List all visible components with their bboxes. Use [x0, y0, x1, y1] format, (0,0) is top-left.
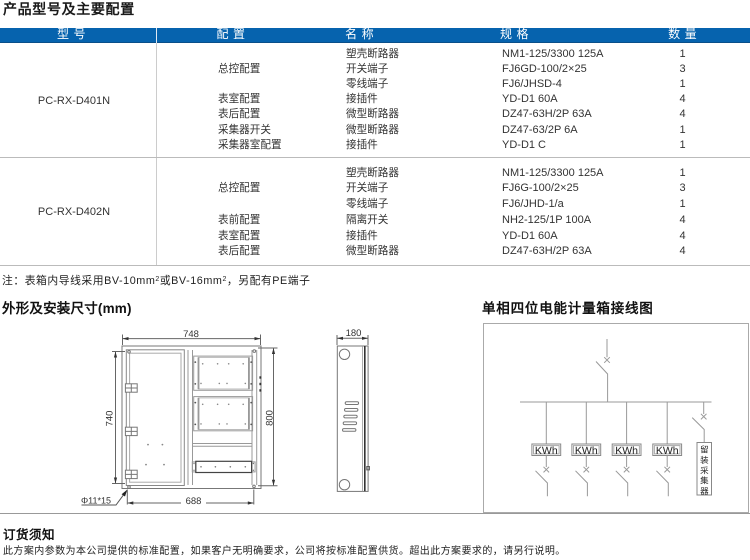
svg-text:采: 采 [700, 465, 709, 475]
svg-text:KWh: KWh [615, 445, 638, 457]
svg-text:装: 装 [700, 455, 709, 465]
svg-text:集: 集 [700, 476, 709, 486]
svg-text:KWh: KWh [575, 445, 598, 457]
svg-text:748: 748 [183, 329, 199, 340]
svg-text:留: 留 [700, 445, 709, 455]
svg-text:器: 器 [700, 486, 709, 496]
svg-text:KWh: KWh [656, 445, 679, 457]
svg-text:Φ11*15: Φ11*15 [81, 495, 111, 505]
svg-text:740: 740 [105, 411, 116, 427]
svg-text:688: 688 [186, 496, 202, 507]
svg-text:180: 180 [346, 328, 362, 339]
svg-text:KWh: KWh [535, 445, 558, 457]
svg-text:800: 800 [265, 410, 276, 426]
